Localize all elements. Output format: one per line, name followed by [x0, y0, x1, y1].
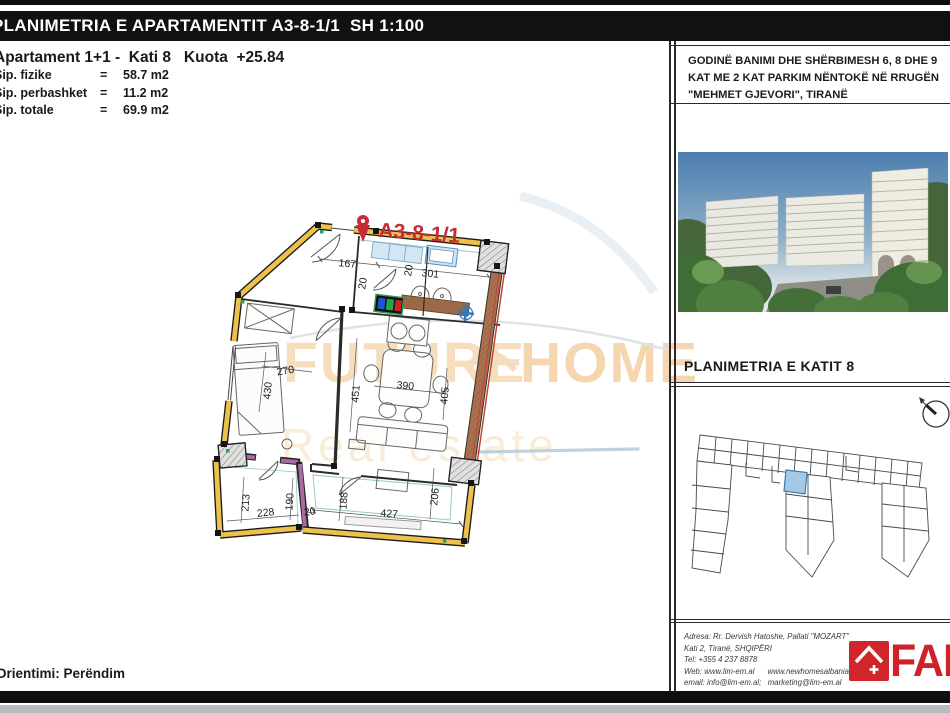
- footer-address-line: email: info@lim-em.al; marketing@lim-em.…: [684, 678, 854, 687]
- svg-text:405: 405: [438, 386, 452, 405]
- upper-cabinets: [371, 242, 423, 264]
- building-render: [678, 152, 948, 312]
- svg-text:213: 213: [239, 493, 252, 511]
- bottom-gray-strip: [0, 705, 950, 713]
- svg-text:20: 20: [303, 505, 316, 518]
- footer-address-line: Tel: +355 4 237 8878: [684, 655, 854, 664]
- car: [826, 286, 841, 294]
- panel-divider: [669, 41, 671, 691]
- svg-text:188: 188: [337, 491, 350, 509]
- wardrobe: [245, 303, 295, 334]
- panel-rule: [669, 382, 950, 384]
- building-left: [706, 196, 778, 268]
- plan-sheet: PLANIMETRIA E APARTAMENTIT A3-8-1/1 SH 1…: [0, 0, 950, 713]
- svg-text:301: 301: [421, 267, 440, 281]
- key-plan-title: PLANIMETRIA E KATIT 8: [684, 358, 854, 374]
- svg-text:190: 190: [283, 492, 296, 510]
- north-compass-icon: [919, 397, 949, 427]
- svg-text:390: 390: [396, 379, 415, 393]
- bottom-border-bar: [0, 691, 950, 703]
- key-plan-footprint: [691, 435, 929, 577]
- kitchen-sink: [425, 245, 458, 267]
- svg-text:167: 167: [338, 257, 357, 271]
- nightstand: [282, 439, 292, 449]
- svg-text:270: 270: [276, 364, 295, 379]
- interior-walls: [241, 236, 500, 485]
- cooktop-burners: [387, 316, 429, 346]
- footer-address-line: Adresa: Rr. Dervish Hatoshe, Pallati "MO…: [684, 632, 854, 641]
- svg-text:20: 20: [402, 264, 416, 278]
- agency-logo-text: FARE: [890, 636, 950, 687]
- sofa: [356, 416, 448, 451]
- orientation-note: Orientimi: Perëndim: [0, 666, 125, 681]
- panel-rule: [669, 386, 950, 387]
- panel-rule: [669, 45, 950, 46]
- panel-rule: [669, 619, 950, 620]
- bed: [233, 343, 284, 436]
- svg-text:20: 20: [356, 277, 370, 291]
- highlighted-unit: [784, 470, 807, 494]
- agency-logo-icon: [848, 636, 892, 684]
- stove-hob: [374, 294, 404, 314]
- panel-rule: [669, 622, 950, 623]
- balcony-wall-brown: [464, 265, 505, 464]
- pin-icon: [361, 219, 365, 223]
- key-plan-drawing: [676, 390, 950, 616]
- building-middle: [786, 194, 864, 266]
- svg-text:451: 451: [349, 384, 362, 402]
- svg-text:427: 427: [380, 507, 398, 520]
- project-title: GODINË BANIMI DHE SHËRBIMESH 6, 8 DHE 9 …: [688, 53, 950, 103]
- footer-address-line: Web: www.lim-em.al www.newhomesalbania.a…: [684, 667, 854, 676]
- footer-address-line: Kati 2, Tiranë, SHQIPËRI: [684, 644, 854, 653]
- svg-text:206: 206: [428, 487, 442, 506]
- kitchen-units: [371, 242, 474, 321]
- svg-text:430: 430: [261, 381, 275, 400]
- svg-text:228: 228: [256, 506, 275, 520]
